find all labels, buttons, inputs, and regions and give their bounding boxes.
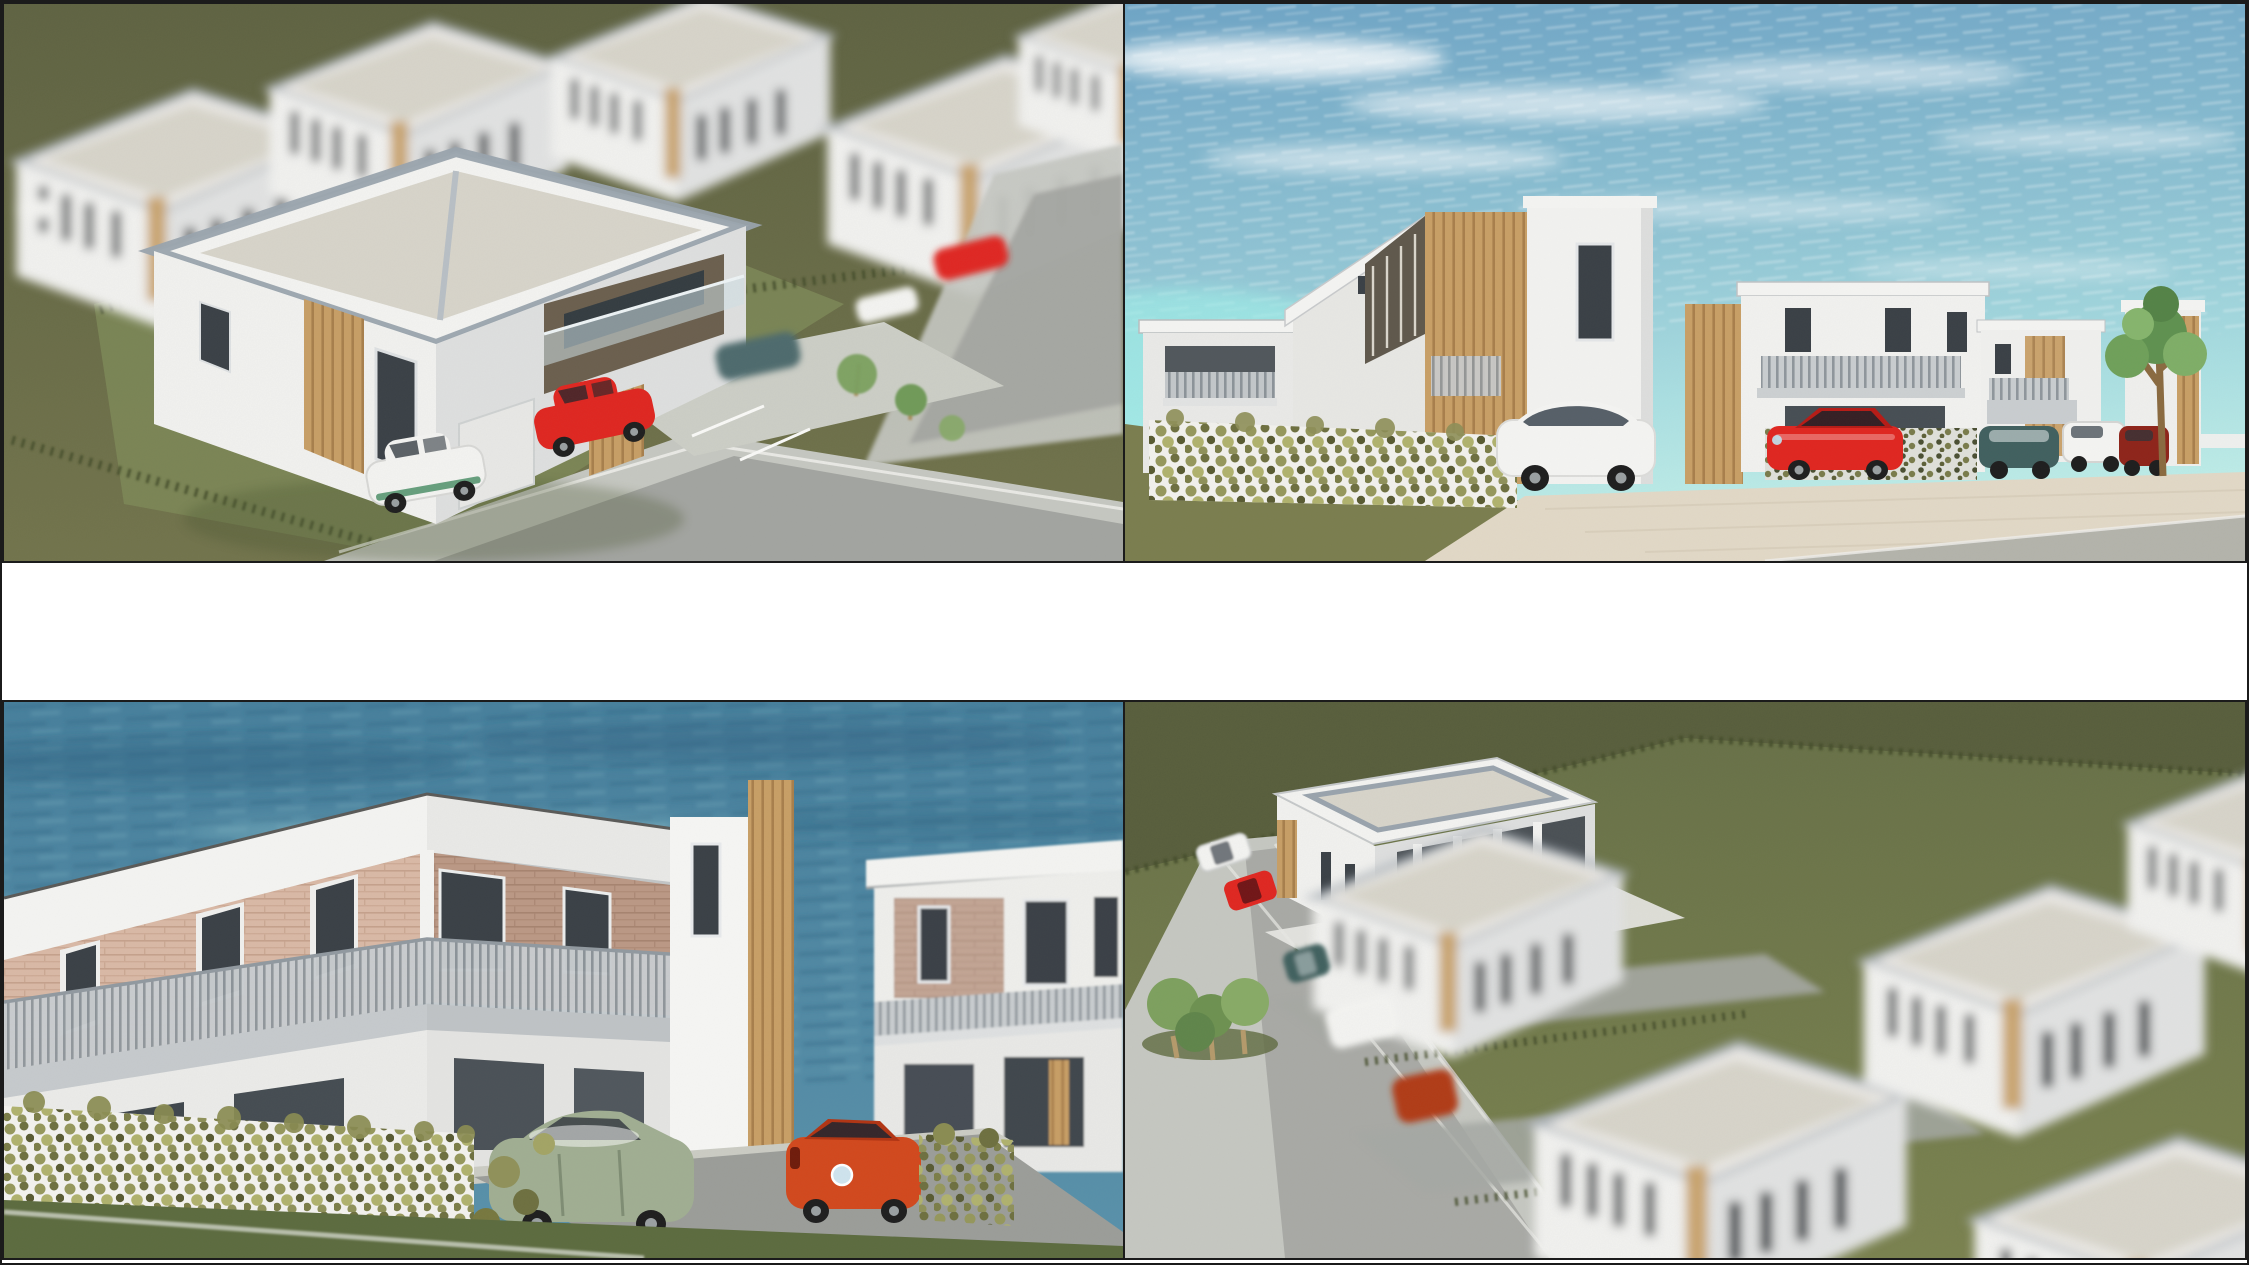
render-bottom-left-closeup — [2, 700, 1125, 1260]
render-top-right-street — [1123, 2, 2247, 563]
grain-overlay — [4, 702, 1123, 1258]
render-bottom-right-aerial — [1123, 700, 2247, 1260]
render-bottom-left-svg — [4, 702, 1123, 1258]
collage-sheet — [0, 0, 2249, 1265]
grain-overlay — [1125, 4, 2245, 561]
grain-overlay — [1125, 702, 2245, 1258]
grain-overlay — [4, 4, 1123, 561]
render-top-right-svg — [1125, 4, 2245, 561]
render-top-left-svg — [4, 4, 1123, 561]
render-bottom-right-svg — [1125, 702, 2245, 1258]
render-top-left-aerial — [2, 2, 1125, 563]
